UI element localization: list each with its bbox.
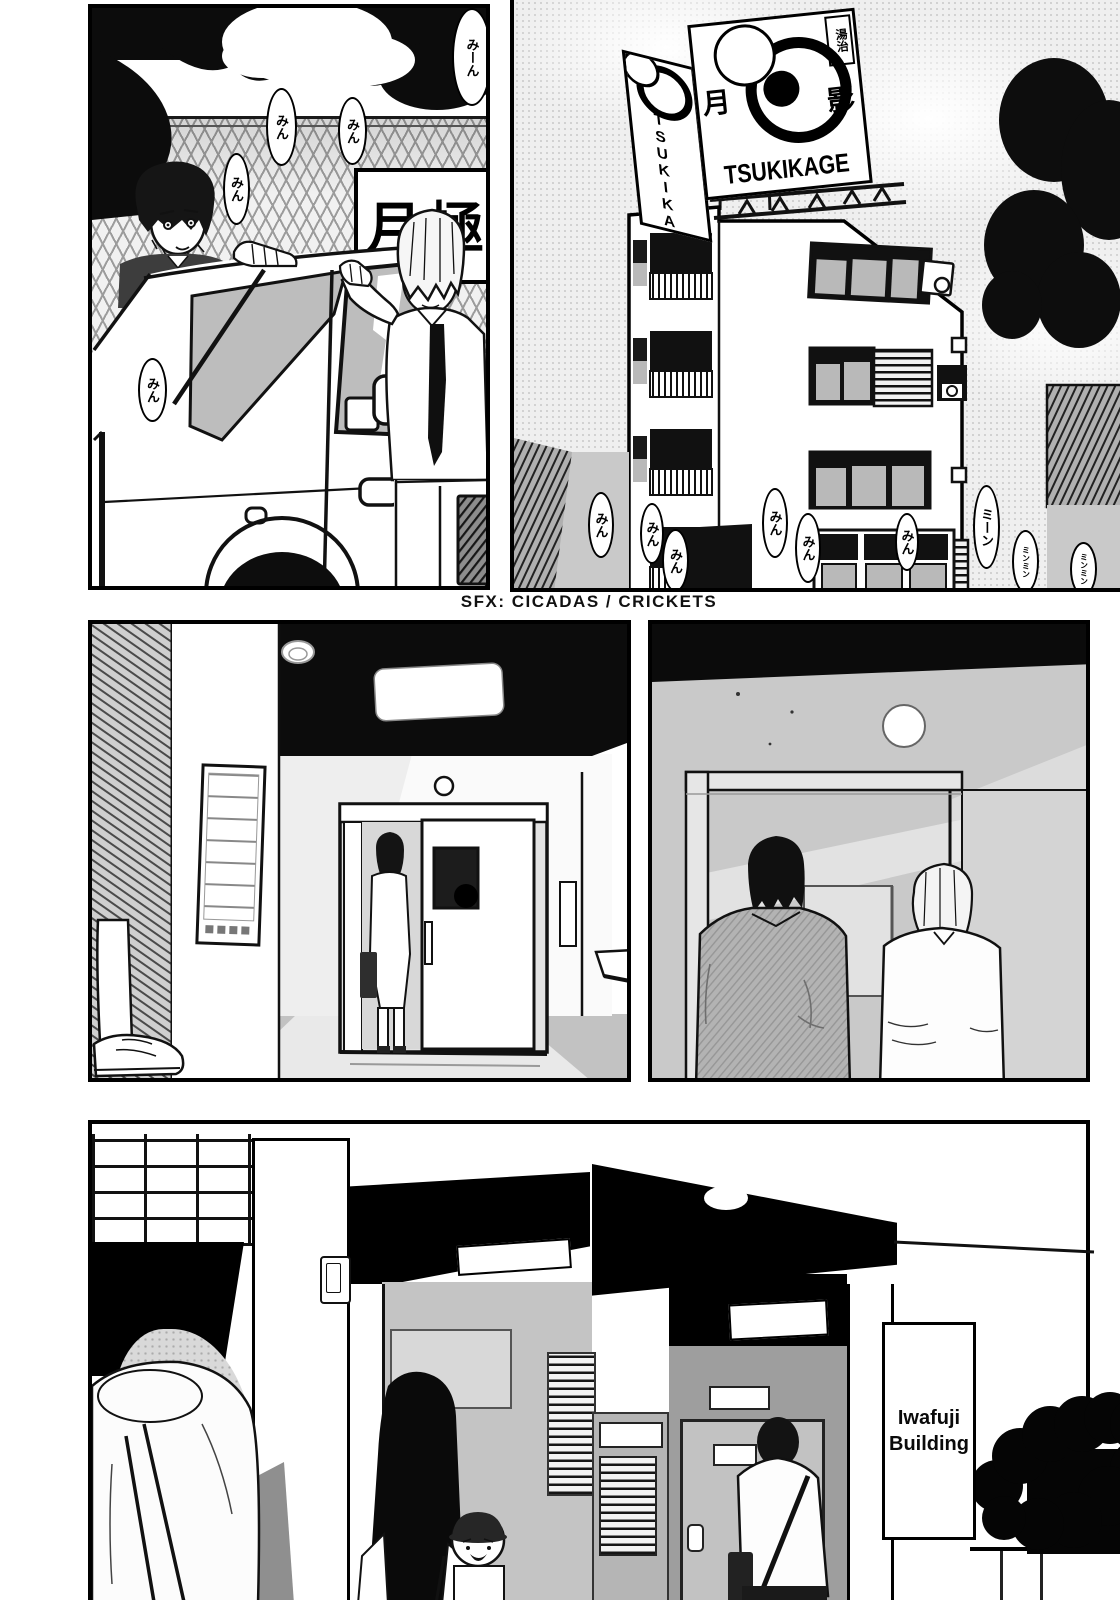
wall-light xyxy=(883,705,925,747)
tsukikage-corner-label: 湯治 xyxy=(824,14,855,66)
panel-street-van: 月極 xyxy=(88,4,490,590)
sfx-bubble: みん xyxy=(338,97,367,165)
ceiling-light xyxy=(374,663,505,722)
sfx-bubble: みん xyxy=(795,513,821,583)
sfx-bubble: みん xyxy=(266,88,297,166)
sfx-bubble: ミンミン xyxy=(1070,542,1097,592)
sfx-bubble: みん xyxy=(223,153,250,225)
sfx-bubble: みん xyxy=(588,492,614,558)
tree-silhouette-right xyxy=(971,1392,1120,1554)
foreground-figure xyxy=(92,1362,294,1600)
man-at-door xyxy=(728,1417,828,1600)
briefcase xyxy=(458,496,490,584)
eave-line xyxy=(894,1242,1094,1252)
sfx-bubble: ミンミン xyxy=(1012,530,1039,592)
panel3-art xyxy=(92,624,631,1082)
panel-two-men xyxy=(648,620,1090,1082)
panel-tsukikage-building: TSUKIKAGE 月 影 湯治 TSUKIKAGE みん みん みん みん み… xyxy=(510,0,1120,592)
sfx-bubble: みん xyxy=(640,503,664,564)
manga-page: 月極 xyxy=(0,0,1120,1600)
sfx-bubble: ミーン xyxy=(973,485,1000,569)
door-handle xyxy=(425,922,432,964)
child xyxy=(449,1512,507,1600)
sfx-bubble: みん xyxy=(895,513,919,571)
sfx-bubble: みん xyxy=(762,488,788,558)
iwafuji-line2: Building xyxy=(889,1431,969,1457)
panel-entrance-hall xyxy=(88,620,631,1082)
tsukikage-side-romaji: TSUKIKAGE xyxy=(649,110,683,243)
tsukikage-kanji-left: 月 xyxy=(700,80,732,123)
sfx-caption: SFX: CICADAS / CRICKETS xyxy=(88,592,1090,612)
panel4-art xyxy=(652,624,1090,1082)
sfx-bubble: みん xyxy=(138,358,167,422)
sfx-bubble: みーん xyxy=(452,8,490,106)
tree-silhouettes xyxy=(982,58,1120,348)
iwafuji-line1: Iwafuji xyxy=(898,1405,960,1431)
bulletin-board xyxy=(197,765,265,945)
panel-iwafuji-entrance: Iwafuji Building xyxy=(88,1120,1090,1600)
tsukikage-kanji-right: 影 xyxy=(825,77,857,120)
jamb-plate xyxy=(560,882,576,946)
iwafuji-building-sign: Iwafuji Building xyxy=(882,1322,976,1540)
tsukikage-romaji: TSUKIKAGE xyxy=(719,147,854,192)
sfx-bubble: みん xyxy=(662,529,689,592)
tsukikage-sign-front: 月 影 湯治 TSUKIKAGE xyxy=(687,8,872,201)
doorbell xyxy=(435,777,453,795)
carried-case xyxy=(360,952,377,998)
